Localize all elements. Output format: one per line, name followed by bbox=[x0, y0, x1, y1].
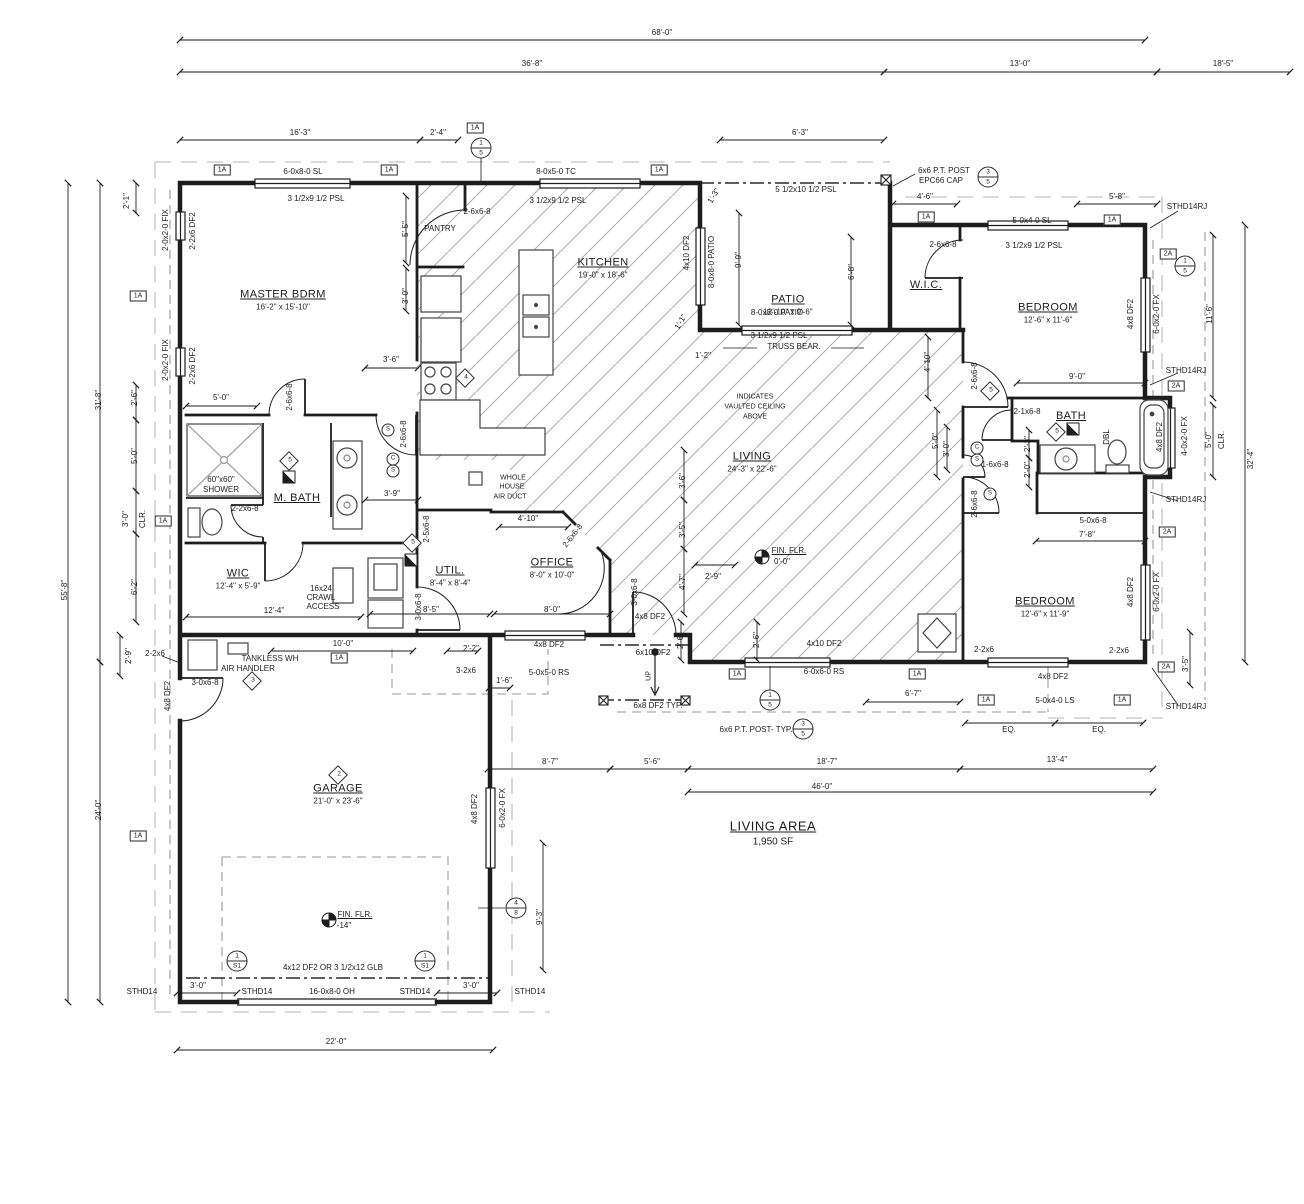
plan-label: 2'-3" bbox=[1024, 436, 1032, 452]
plan-label: 3'-6" bbox=[383, 356, 399, 364]
plan-label: STHD14 bbox=[127, 988, 158, 996]
plan-label: 2'-0" bbox=[1024, 462, 1032, 478]
plan-label: 5'-0" bbox=[213, 394, 229, 402]
electrical-symbol: S bbox=[387, 465, 400, 478]
keynote-diamond: 5 bbox=[980, 381, 1000, 401]
plan-label: AIR DUCT bbox=[493, 494, 526, 501]
room-label: PATIO12'-10" x 9'-6" bbox=[763, 294, 812, 317]
plan-label: 6-0x2-0 FX bbox=[499, 788, 507, 828]
plan-label: 5 1/2x10 1/2 PSL bbox=[775, 186, 836, 194]
plan-label: 3'-0" bbox=[402, 288, 410, 304]
shearwall-tag: 1A bbox=[381, 165, 398, 176]
room-label: UTIL.8'-4" x 8'-4" bbox=[430, 565, 470, 588]
plan-label: 2-6x6-8 bbox=[971, 362, 979, 389]
plan-label: 6-0x2-0 FX bbox=[1153, 572, 1161, 612]
plan-label: 9'-3" bbox=[536, 909, 544, 925]
plan-label: 46'-0" bbox=[812, 783, 832, 791]
electrical-symbol: S bbox=[971, 454, 984, 467]
shearwall-tag: 1A bbox=[1104, 215, 1121, 226]
shearwall-tag: 1A bbox=[331, 653, 348, 664]
plan-label: 6x6 P.T. POST bbox=[918, 167, 970, 175]
shearwall-tag: 1A bbox=[467, 123, 484, 134]
plan-label: 6'-7" bbox=[905, 690, 921, 698]
plan-label: 4'-6" bbox=[917, 193, 933, 201]
plan-label: CLR. bbox=[139, 510, 147, 528]
plan-label: 4x8 DF2 bbox=[534, 641, 564, 649]
electrical-symbol: S bbox=[382, 424, 395, 437]
room-label: WIC12'-4" x 5'-9" bbox=[216, 568, 261, 591]
plan-label: 2'-9" bbox=[125, 648, 133, 664]
plan-label: STHD14 bbox=[242, 988, 273, 996]
plan-label: 3 1/2x9 1/2 PSL bbox=[288, 195, 345, 203]
plan-label: 2-1x6-8 bbox=[1013, 408, 1040, 416]
shearwall-tag: 1A bbox=[918, 212, 935, 223]
room-label: GARAGE21'-0" x 23'-6" bbox=[313, 783, 362, 806]
plan-label: CRAWL bbox=[307, 594, 336, 602]
plan-label: 31'-8" bbox=[95, 390, 103, 410]
plan-label: 11'-6" bbox=[1206, 304, 1214, 324]
plan-label: 1'-6" bbox=[496, 677, 512, 685]
plan-label: 6'-8" bbox=[848, 264, 856, 280]
plan-label: 3 1/2x9 1/2 PSL bbox=[751, 332, 808, 340]
glazing-marker bbox=[283, 471, 296, 484]
plan-label: 9'-0" bbox=[1069, 373, 1085, 381]
plan-label: -14" bbox=[337, 922, 351, 930]
keynote-diamond: 4 bbox=[455, 368, 475, 388]
plan-label: 4x10 DF2 bbox=[683, 236, 691, 271]
detail-callout: 15 bbox=[1175, 256, 1196, 277]
plan-label: 16'-3" bbox=[290, 129, 310, 137]
shearwall-tag: 2A bbox=[1159, 527, 1176, 538]
plan-label: 5-0x4-0 SL bbox=[1012, 217, 1051, 225]
plan-label: 5'-8" bbox=[1109, 193, 1125, 201]
detail-callout: 1S1 bbox=[415, 951, 436, 972]
plan-label: 6-0x2-0 FX bbox=[1153, 294, 1161, 334]
room-label: MASTER BDRM16'-2" x 15'-10" bbox=[240, 289, 326, 312]
plan-label: 3-0x6-8 bbox=[415, 593, 423, 620]
keynote-diamond: 5 bbox=[1046, 422, 1066, 442]
plan-label: FIN. FLR. bbox=[338, 911, 373, 919]
plan-label: 2-0x2-0 FIX bbox=[162, 339, 170, 381]
plan-label: 2-2x6 DF2 bbox=[189, 347, 197, 384]
plan-label: 2-6x6-8 bbox=[400, 420, 408, 447]
plan-label: 3'-0" bbox=[943, 441, 951, 457]
shearwall-tag: 1A bbox=[909, 669, 926, 680]
plan-label: 2'-6" bbox=[677, 633, 685, 649]
plan-label: 2-2x6 bbox=[145, 650, 165, 658]
plan-label: 6'-2" bbox=[131, 579, 139, 595]
plan-label: 2'-6" bbox=[131, 390, 139, 406]
detail-callout: 35 bbox=[793, 719, 814, 740]
plan-label: DBL bbox=[1103, 429, 1111, 445]
plan-label: 13'-0" bbox=[1010, 60, 1030, 68]
plan-label: 2-2x6 bbox=[1109, 647, 1129, 655]
plan-label: 32'-4" bbox=[1247, 449, 1255, 469]
plan-label: 0'-0" bbox=[774, 558, 790, 566]
plan-label: 1-6x6-8 bbox=[981, 461, 1008, 469]
plan-label: 3 1/2x9 1/2 PSL bbox=[530, 197, 587, 205]
shearwall-tag: 1A bbox=[130, 831, 147, 842]
plan-label: STHD14RJ bbox=[1166, 703, 1206, 711]
plan-label: PANTRY bbox=[424, 225, 456, 233]
plan-label: 36'-8" bbox=[522, 60, 542, 68]
plan-label: STHD14RJ bbox=[1167, 203, 1207, 211]
room-label: OFFICE8'-0" x 10'-0" bbox=[530, 557, 575, 580]
shearwall-tag: 2A bbox=[1158, 662, 1175, 673]
detail-callout: 1S1 bbox=[227, 951, 248, 972]
plan-label: 2-2x6 DF2 bbox=[189, 212, 197, 249]
plan-label: FIN. FLR. bbox=[772, 547, 807, 555]
plan-label: 4'-10" bbox=[924, 352, 932, 372]
plan-label: 8'-0" bbox=[544, 606, 560, 614]
plan-label: 4x8 DF2 bbox=[1127, 577, 1135, 607]
plan-label: 8'-7" bbox=[542, 758, 558, 766]
glazing-marker bbox=[1067, 423, 1080, 436]
detail-callout: 15 bbox=[760, 690, 781, 711]
detail-callout: 15 bbox=[471, 138, 492, 159]
plan-label: 16-0x8-0 OH bbox=[309, 988, 355, 996]
plan-label: 13'-4" bbox=[1047, 756, 1067, 764]
plan-label: 8-0x8-0 PATIO bbox=[708, 236, 716, 288]
plan-label: 5'-6" bbox=[644, 758, 660, 766]
plan-label: 3-0x6-8 bbox=[191, 679, 218, 687]
plan-label: SHOWER bbox=[203, 486, 239, 494]
plan-label: 4-0x2-0 FX bbox=[1181, 416, 1189, 456]
shearwall-tag: 1A bbox=[978, 695, 995, 706]
plan-annotations: LIVING AREA 1,950 SF 68'-0"36'-8"13'-0"1… bbox=[0, 0, 1304, 1204]
plan-label: 1'-3" bbox=[707, 187, 722, 205]
plan-label: 68'-0" bbox=[652, 29, 672, 37]
plan-label: STHD14 bbox=[400, 988, 431, 996]
plan-label: 3'-5" bbox=[1182, 656, 1190, 672]
plan-label: 55'-8" bbox=[61, 580, 69, 600]
detail-callout: 48 bbox=[506, 898, 527, 919]
plan-label: WHOLE bbox=[500, 475, 526, 482]
plan-label: VAULTED CEILING bbox=[724, 404, 785, 411]
plan-label: HOUSE bbox=[500, 484, 525, 491]
plan-label: EQ. bbox=[1092, 726, 1106, 734]
plan-label: 9'-9" bbox=[735, 252, 743, 268]
plan-label: 3 1/2x9 1/2 PSL bbox=[1006, 242, 1063, 250]
plan-label: EPC66 CAP bbox=[919, 177, 963, 185]
room-label: BEDROOM12'-6" x 11'-9" bbox=[1015, 596, 1075, 619]
plan-label: 18'-7" bbox=[817, 758, 837, 766]
plan-label: 6x10 DF2 bbox=[636, 649, 671, 657]
keynote-diamond: 5 bbox=[279, 451, 299, 471]
glazing-marker bbox=[405, 554, 418, 567]
plan-label: STHD14 bbox=[515, 988, 546, 996]
plan-label: STHD14RJ bbox=[1166, 367, 1206, 375]
floor-plan: LIVING AREA 1,950 SF 68'-0"36'-8"13'-0"1… bbox=[0, 0, 1304, 1204]
detail-callout: 35 bbox=[978, 167, 999, 188]
plan-label: 2'-2" bbox=[463, 645, 479, 653]
plan-label: 16x24 bbox=[310, 585, 332, 593]
shearwall-tag: 2A bbox=[1160, 249, 1177, 260]
plan-label: 2'-1" bbox=[123, 193, 131, 209]
plan-label: 3-0x6-8 bbox=[631, 578, 639, 605]
plan-label: 6x6 P.T. POST- TYP. bbox=[720, 726, 793, 734]
plan-label: 6-0x6-0 RS bbox=[804, 668, 844, 676]
keynote-diamond: 5 bbox=[402, 533, 422, 553]
plan-label: 3-2x6 bbox=[456, 667, 476, 675]
plan-label: 4x10 DF2 bbox=[807, 640, 842, 648]
plan-label: TANKLESS WH bbox=[242, 655, 299, 663]
plan-label: 8'-5" bbox=[423, 606, 439, 614]
plan-label: STHD14RJ bbox=[1166, 496, 1206, 504]
shearwall-tag: 1A bbox=[1114, 695, 1131, 706]
shearwall-tag: 1A bbox=[651, 165, 668, 176]
plan-label: 2-6x6-8 bbox=[929, 241, 956, 249]
living-area-total: LIVING AREA 1,950 SF bbox=[730, 819, 816, 848]
shearwall-tag: 1A bbox=[729, 669, 746, 680]
plan-label: 5-0x4-0 LS bbox=[1035, 697, 1074, 705]
plan-label: 22'-0" bbox=[326, 1038, 346, 1046]
plan-label: 3'-0" bbox=[122, 511, 130, 527]
room-label: M. BATH bbox=[274, 492, 321, 504]
plan-label: 5'-5" bbox=[402, 221, 410, 237]
plan-label: 4'-7" bbox=[679, 574, 687, 590]
plan-label: 4x8 DF2 bbox=[1038, 673, 1068, 681]
plan-label: 6x8 DF2 TYP. bbox=[633, 702, 682, 710]
plan-label: TRUSS BEAR. bbox=[767, 343, 820, 351]
plan-label: 1'-1" bbox=[674, 313, 689, 331]
plan-label: INDICATES bbox=[737, 394, 774, 401]
plan-label: 4x8 DF2 bbox=[471, 794, 479, 824]
plan-label: 5'-0" bbox=[131, 448, 139, 464]
plan-label: 2-6x6-8 bbox=[561, 523, 584, 549]
plan-label: 3'-0" bbox=[190, 982, 206, 990]
plan-label: 2-6x6-8 bbox=[971, 490, 979, 517]
plan-label: 3'-6" bbox=[679, 473, 687, 489]
plan-label: 5-0x6-8 bbox=[1079, 517, 1106, 525]
plan-label: 7'-8" bbox=[1079, 531, 1095, 539]
shearwall-tag: 1A bbox=[214, 165, 231, 176]
shearwall-tag: 1A bbox=[155, 516, 172, 527]
keynote-diamond: 3 bbox=[242, 671, 262, 691]
plan-label: UP bbox=[646, 671, 653, 681]
room-label: BEDROOM12'-6" x 11'-6" bbox=[1018, 302, 1078, 325]
plan-label: 2-6x6-8 bbox=[286, 383, 294, 410]
plan-label: AIR HANDLER bbox=[221, 665, 275, 673]
plan-label: 2-2x6-8 bbox=[231, 505, 258, 513]
plan-label: 2'-4" bbox=[430, 129, 446, 137]
plan-label: 24'-0" bbox=[95, 800, 103, 820]
living-area-value: 1,950 SF bbox=[730, 837, 816, 848]
plan-label: 2-2x6 bbox=[974, 646, 994, 654]
living-area-label: LIVING AREA bbox=[730, 819, 816, 834]
plan-label: 4x12 DF2 OR 3 1/2x12 GLB bbox=[283, 964, 383, 972]
plan-label: 3'-9" bbox=[384, 490, 400, 498]
plan-label: 4x8 DF2 bbox=[1127, 299, 1135, 329]
room-label: KITCHEN19'-0" x 18'-6" bbox=[577, 257, 628, 280]
plan-label: 12'-4" bbox=[264, 607, 284, 615]
plan-label: ABOVE bbox=[743, 414, 767, 421]
room-label: LIVING24'-3" x 22'-6" bbox=[727, 451, 776, 474]
plan-label: 5'-0" bbox=[1205, 432, 1213, 448]
plan-label: 2'-6" bbox=[753, 632, 761, 648]
room-label: BATH bbox=[1056, 410, 1086, 422]
plan-label: 2-6x6-8 bbox=[463, 208, 490, 216]
plan-label: 2-5x6-8 bbox=[423, 515, 431, 542]
shearwall-tag: 2A bbox=[1168, 381, 1185, 392]
plan-label: 6-0x8-0 SL bbox=[283, 168, 322, 176]
plan-label: 6'-3" bbox=[792, 129, 808, 137]
shearwall-tag: 1A bbox=[130, 291, 147, 302]
plan-label: ACCESS bbox=[307, 603, 340, 611]
plan-label: 2-0x2-0 FIX bbox=[162, 209, 170, 251]
plan-label: 3'-5" bbox=[679, 522, 687, 538]
plan-label: 5-0x5-0 RS bbox=[529, 669, 569, 677]
plan-label: 4x8 DF2 bbox=[635, 613, 665, 621]
room-label: W.I.C. bbox=[910, 279, 942, 291]
electrical-symbol: S bbox=[984, 488, 997, 501]
plan-label: EQ. bbox=[1002, 726, 1016, 734]
plan-label: 2'-9" bbox=[705, 573, 721, 581]
plan-label: CLR. bbox=[1218, 431, 1226, 449]
plan-label: 4'-10" bbox=[518, 515, 538, 523]
plan-label: 60"x60" bbox=[207, 476, 234, 484]
plan-label: 10'-0" bbox=[333, 640, 353, 648]
plan-label: 4x8 DF2 bbox=[1156, 422, 1164, 452]
plan-label: 4x8 DF2 bbox=[164, 681, 172, 711]
plan-label: 18'-5" bbox=[1213, 60, 1233, 68]
plan-label: 3'-0" bbox=[463, 982, 479, 990]
plan-label: 1'-2" bbox=[695, 352, 711, 360]
plan-label: 5'-0" bbox=[932, 433, 940, 449]
plan-label: 8-0x5-0 TC bbox=[536, 168, 576, 176]
